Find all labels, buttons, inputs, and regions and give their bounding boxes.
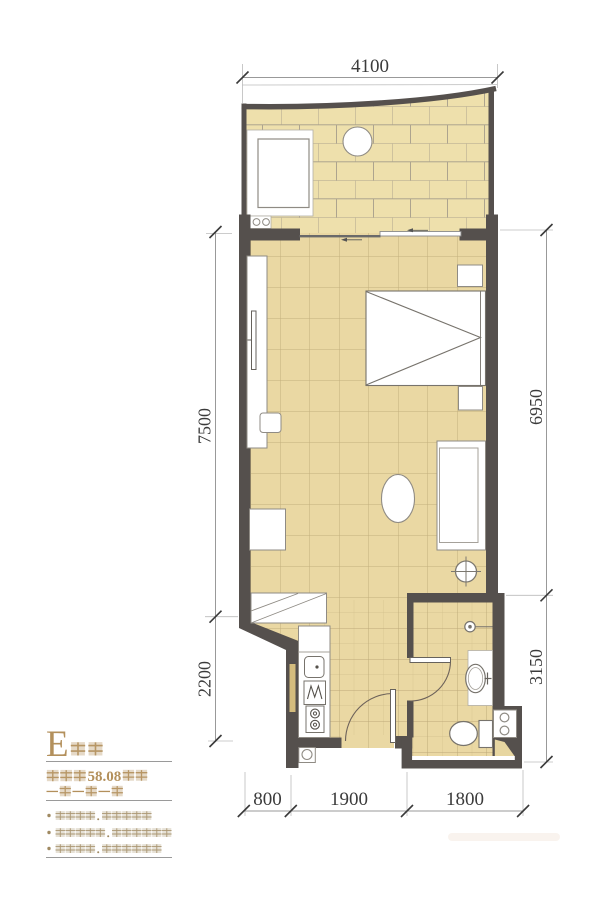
svg-text:4100: 4100 [351, 56, 389, 77]
svg-text:800: 800 [253, 789, 282, 810]
svg-text:E: E [46, 724, 69, 765]
svg-text:58.08: 58.08 [88, 769, 122, 785]
svg-text:6950: 6950 [526, 389, 546, 425]
svg-text:7500: 7500 [195, 408, 215, 444]
svg-text:3150: 3150 [526, 649, 546, 685]
svg-text:2200: 2200 [195, 661, 215, 697]
svg-text:1900: 1900 [330, 789, 368, 810]
svg-text:1800: 1800 [446, 789, 484, 810]
